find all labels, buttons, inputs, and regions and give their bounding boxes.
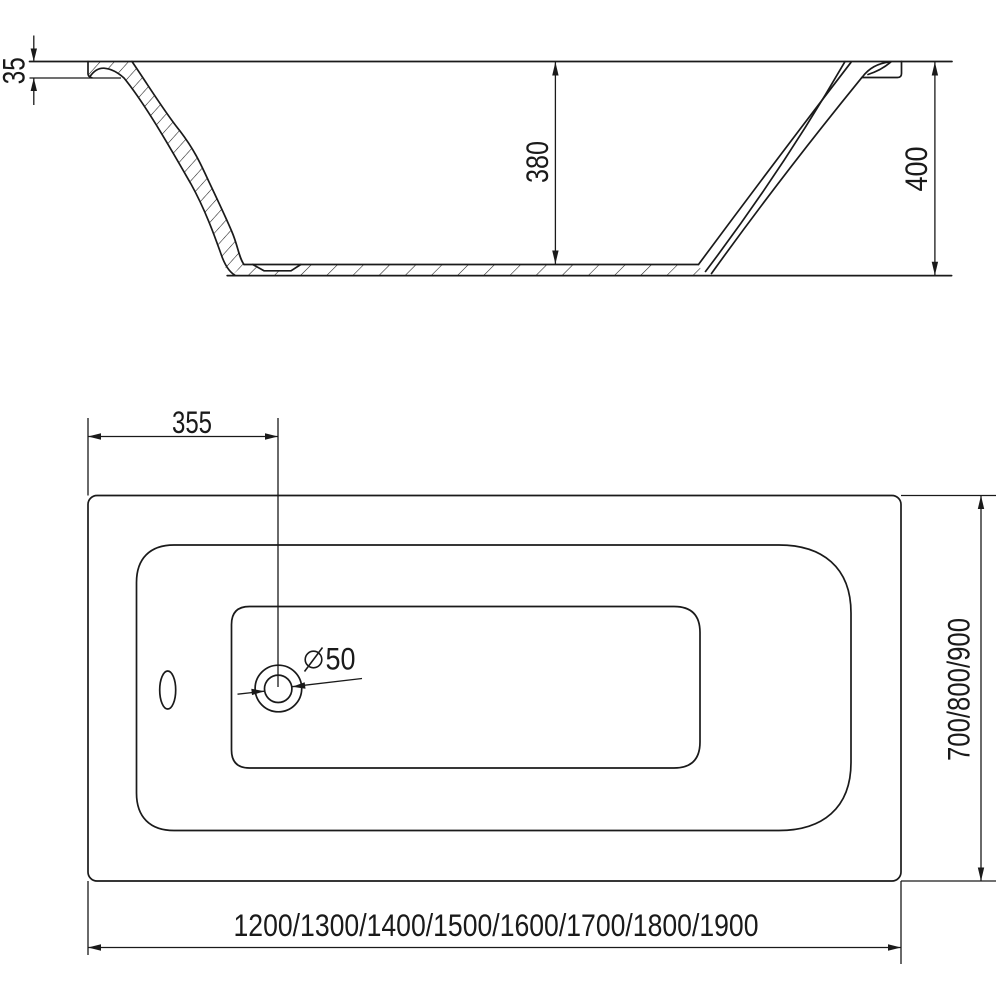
svg-text:50: 50: [326, 641, 356, 677]
svg-text:35: 35: [0, 57, 32, 84]
svg-text:380: 380: [519, 141, 555, 183]
svg-text:1200/1300/1400/1500/1600/1700/: 1200/1300/1400/1500/1600/1700/1800/1900: [234, 907, 759, 943]
svg-text:400: 400: [898, 147, 934, 192]
svg-text:700/800/900: 700/800/900: [941, 618, 977, 761]
svg-text:355: 355: [172, 404, 212, 440]
